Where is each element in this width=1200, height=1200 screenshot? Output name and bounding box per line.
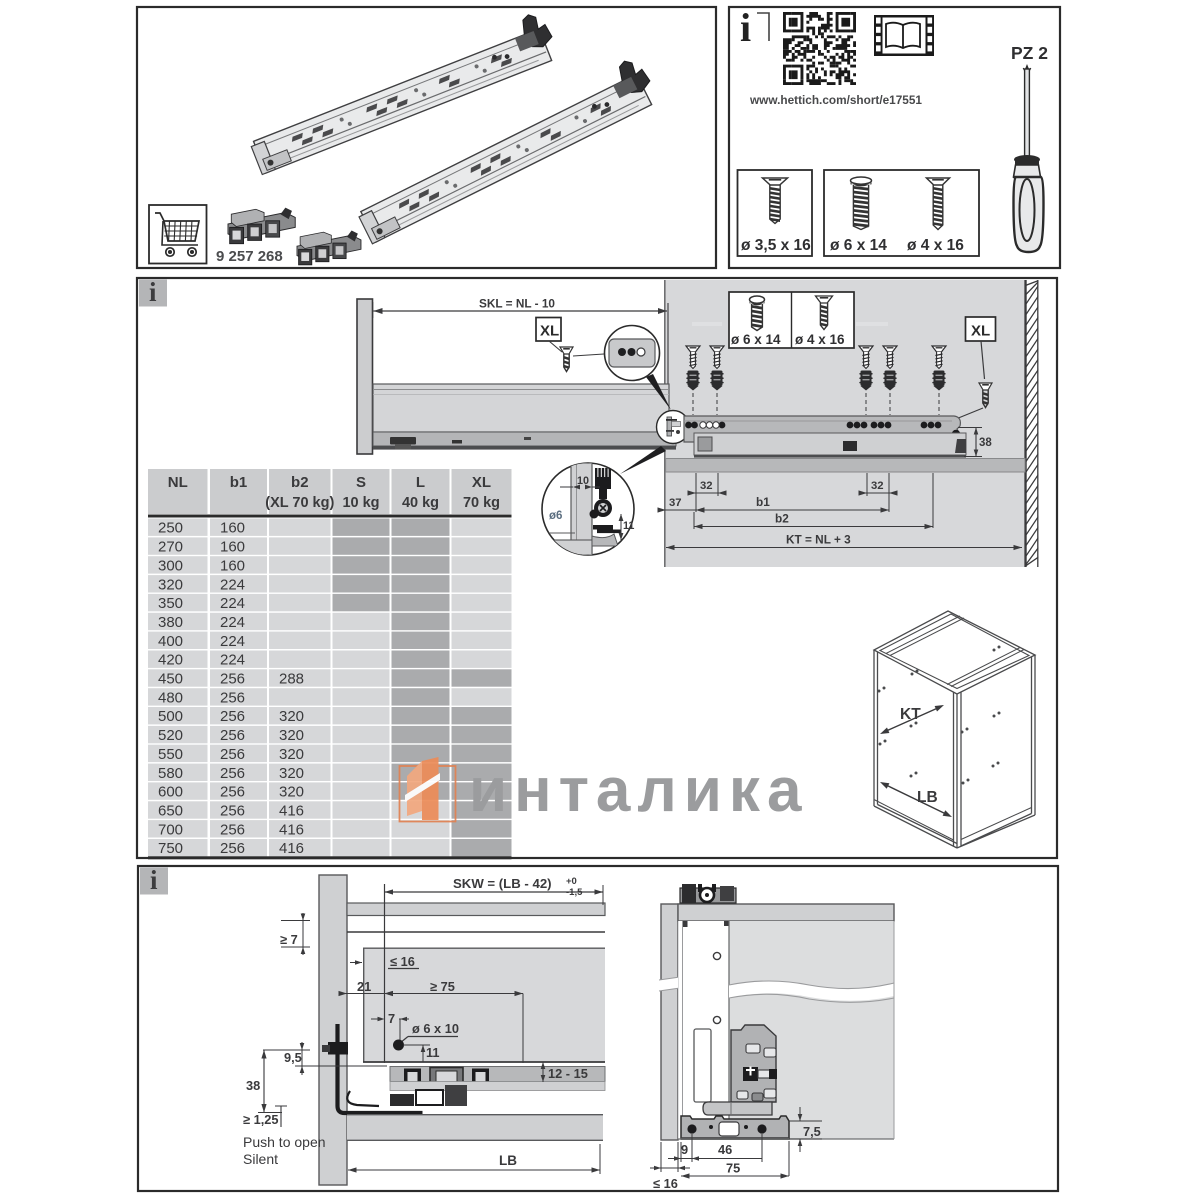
svg-text:ø6: ø6 [549, 510, 562, 522]
svg-text:256: 256 [220, 840, 245, 857]
svg-text:320: 320 [279, 727, 304, 744]
svg-text:21: 21 [357, 979, 371, 994]
svg-text:550: 550 [158, 746, 183, 763]
svg-text:600: 600 [158, 784, 183, 801]
svg-text:32: 32 [871, 480, 884, 492]
svg-text:NL: NL [168, 474, 188, 491]
svg-text:270: 270 [158, 539, 183, 556]
svg-text:11: 11 [426, 1045, 440, 1060]
svg-text:≥ 1,25: ≥ 1,25 [243, 1112, 279, 1127]
svg-text:224: 224 [220, 595, 245, 612]
svg-text:≥ 75: ≥ 75 [430, 979, 455, 994]
svg-text:160: 160 [220, 557, 245, 574]
svg-text:580: 580 [158, 765, 183, 782]
svg-text:224: 224 [220, 614, 245, 631]
svg-text:256: 256 [220, 821, 245, 838]
svg-text:-1,5: -1,5 [566, 887, 583, 898]
svg-text:256: 256 [220, 765, 245, 782]
svg-text:PZ 2: PZ 2 [1011, 43, 1048, 63]
svg-text:SKW = (LB - 42): SKW = (LB - 42) [453, 876, 552, 891]
svg-text:SKL = NL - 10: SKL = NL - 10 [479, 297, 555, 311]
svg-text:Push to open: Push to open [243, 1134, 326, 1150]
svg-text:520: 520 [158, 727, 183, 744]
svg-text:256: 256 [220, 784, 245, 801]
svg-text:480: 480 [158, 689, 183, 706]
svg-text:7: 7 [388, 1011, 395, 1026]
svg-text:416: 416 [279, 821, 304, 838]
svg-text:350: 350 [158, 595, 183, 612]
svg-text:(XL 70 kg): (XL 70 kg) [265, 495, 334, 511]
svg-text:224: 224 [220, 652, 245, 669]
svg-text:256: 256 [220, 803, 245, 820]
svg-text:9: 9 [681, 1142, 688, 1157]
svg-text:ø 4 x 16: ø 4 x 16 [795, 332, 845, 347]
svg-text:38: 38 [246, 1078, 260, 1093]
svg-text:10 kg: 10 kg [342, 495, 379, 511]
svg-text:ø 3,5 x 16: ø 3,5 x 16 [741, 237, 811, 254]
svg-text:LB: LB [499, 1153, 517, 1168]
svg-text:320: 320 [279, 784, 304, 801]
svg-text:≥ 7: ≥ 7 [280, 932, 298, 947]
svg-text:416: 416 [279, 803, 304, 820]
svg-text:≤ 16: ≤ 16 [653, 1176, 678, 1191]
svg-text:KT = NL + 3: KT = NL + 3 [786, 533, 851, 547]
svg-text:ø 6 x 14: ø 6 x 14 [731, 332, 781, 347]
svg-text:i: i [149, 277, 157, 307]
svg-text:b2: b2 [291, 474, 309, 491]
svg-text:750: 750 [158, 840, 183, 857]
svg-text:ø 6 x 14: ø 6 x 14 [830, 237, 887, 254]
svg-text:256: 256 [220, 746, 245, 763]
svg-text:250: 250 [158, 520, 183, 537]
svg-text:40 kg: 40 kg [402, 495, 439, 511]
svg-text:300: 300 [158, 557, 183, 574]
svg-text:+0: +0 [566, 876, 577, 887]
svg-text:i: i [740, 5, 751, 50]
svg-text:700: 700 [158, 821, 183, 838]
svg-text:XL: XL [971, 323, 990, 340]
svg-text:70 kg: 70 kg [463, 495, 500, 511]
svg-text:11: 11 [623, 520, 634, 532]
svg-text:37: 37 [669, 497, 682, 509]
svg-text:KT: KT [900, 706, 921, 723]
svg-text:450: 450 [158, 671, 183, 688]
svg-text:9 257 268: 9 257 268 [216, 248, 283, 265]
svg-text:320: 320 [279, 746, 304, 763]
svg-text:320: 320 [279, 708, 304, 725]
svg-text:500: 500 [158, 708, 183, 725]
svg-text:160: 160 [220, 520, 245, 537]
svg-text:160: 160 [220, 539, 245, 556]
svg-text:256: 256 [220, 671, 245, 688]
svg-text:38: 38 [979, 437, 992, 449]
svg-text:Silent: Silent [243, 1151, 278, 1167]
svg-text:i: i [150, 865, 158, 895]
svg-text:ø 4 x 16: ø 4 x 16 [907, 237, 964, 254]
svg-text:288: 288 [279, 671, 304, 688]
svg-text:ø 6 x 10: ø 6 x 10 [412, 1021, 459, 1036]
svg-text:12 - 15: 12 - 15 [548, 1066, 588, 1081]
svg-text:46: 46 [718, 1142, 732, 1157]
svg-text:9,5: 9,5 [284, 1050, 302, 1065]
svg-text:LB: LB [917, 789, 938, 806]
svg-text:224: 224 [220, 633, 245, 650]
svg-text:650: 650 [158, 803, 183, 820]
svg-text:XL: XL [472, 474, 491, 491]
svg-text:10: 10 [577, 475, 589, 487]
svg-text:320: 320 [158, 576, 183, 593]
svg-text:XL: XL [540, 323, 559, 340]
svg-text:256: 256 [220, 708, 245, 725]
svg-text:75: 75 [726, 1161, 740, 1176]
svg-text:7,5: 7,5 [803, 1124, 821, 1139]
svg-text:S: S [356, 474, 366, 491]
svg-text:www.hettich.com/short/e17551: www.hettich.com/short/e17551 [749, 93, 922, 107]
svg-text:b2: b2 [775, 512, 789, 526]
svg-text:400: 400 [158, 633, 183, 650]
svg-text:380: 380 [158, 614, 183, 631]
svg-text:416: 416 [279, 840, 304, 857]
svg-text:b1: b1 [230, 474, 248, 491]
svg-text:420: 420 [158, 652, 183, 669]
svg-text:b1: b1 [756, 495, 770, 509]
svg-text:≤ 16: ≤ 16 [390, 954, 415, 969]
svg-text:256: 256 [220, 689, 245, 706]
svg-text:224: 224 [220, 576, 245, 593]
svg-text:инталика: инталика [469, 756, 808, 825]
svg-text:320: 320 [279, 765, 304, 782]
svg-text:256: 256 [220, 727, 245, 744]
svg-text:32: 32 [700, 480, 713, 492]
svg-text:L: L [416, 474, 425, 491]
